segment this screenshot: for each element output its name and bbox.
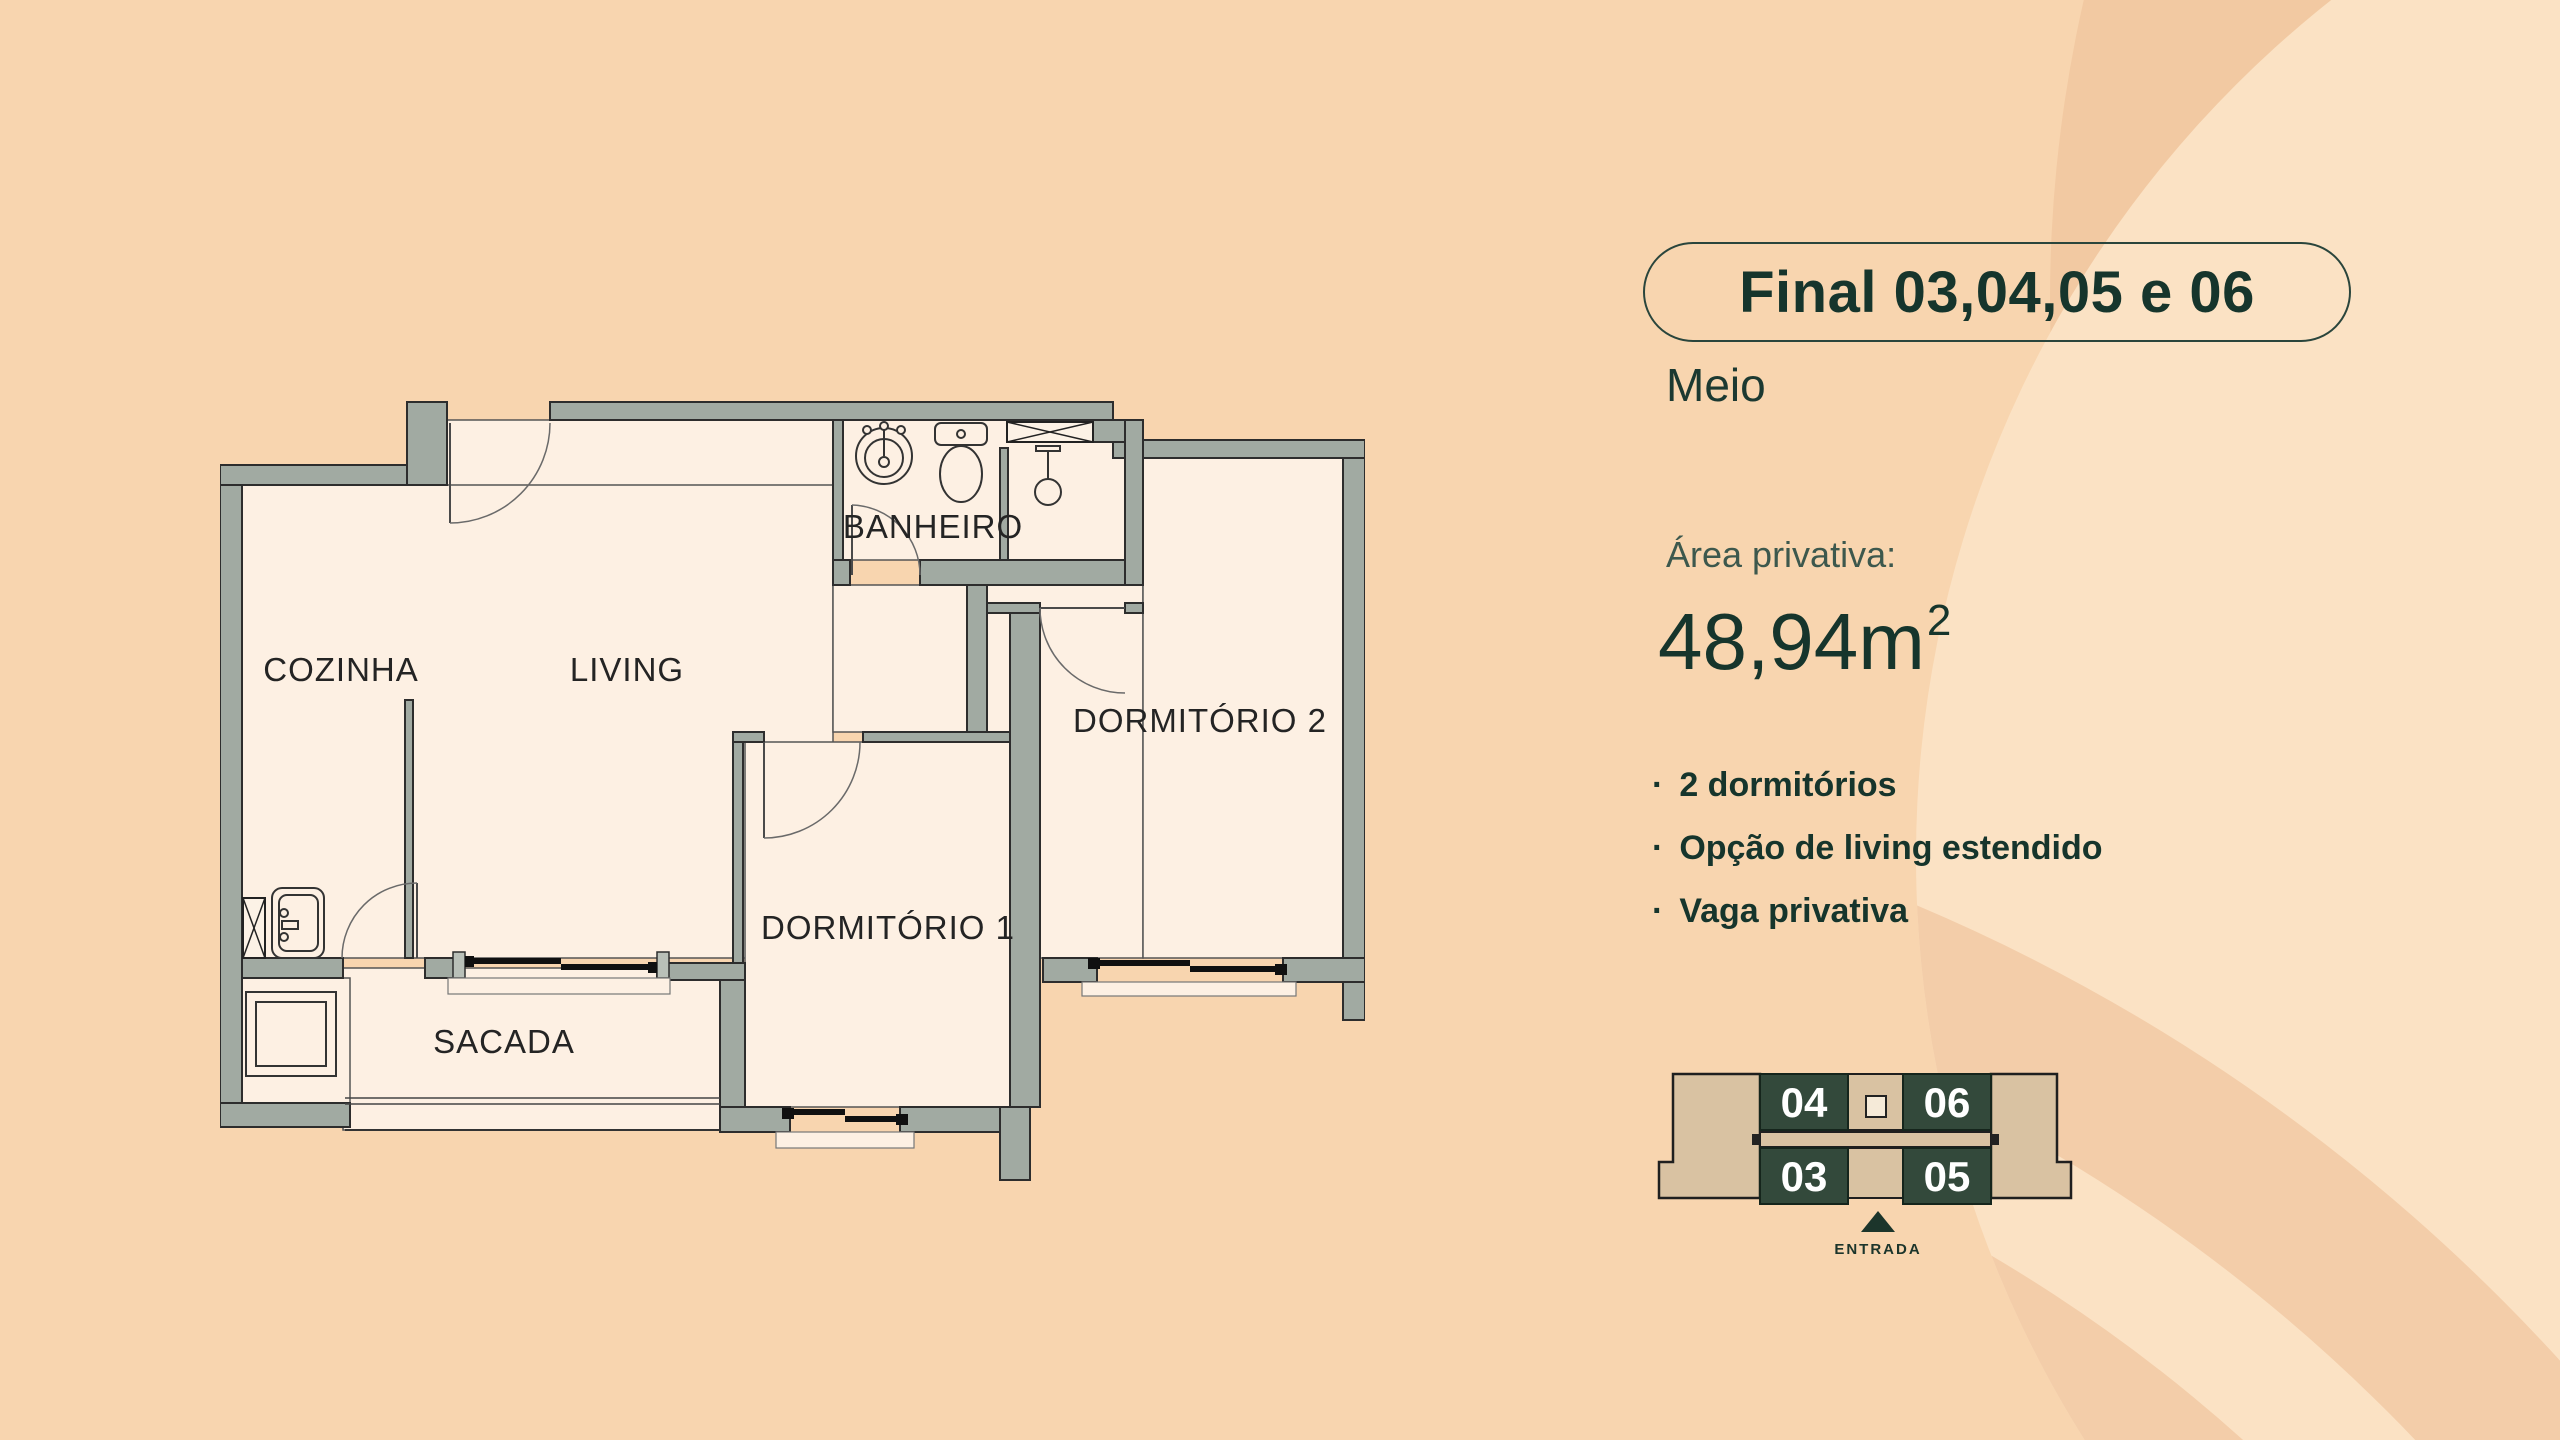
feature-item: · 2 dormitórios <box>1652 766 2103 805</box>
feature-item: · Opção de living estendido <box>1652 829 2103 868</box>
building-core-bottom <box>1848 1148 1903 1198</box>
feature-text: 2 dormitórios <box>1679 766 1896 805</box>
room-label-balcony: SACADA <box>433 1023 575 1060</box>
bullet-icon: · <box>1652 766 1663 805</box>
area-superscript: 2 <box>1927 596 1951 645</box>
unit-06-label: 06 <box>1924 1079 1971 1126</box>
floor-plan: COZINHA LIVING BANHEIRO DORMITÓRIO 2 DOR… <box>220 392 1365 1182</box>
bedroom1-window <box>776 1108 914 1148</box>
living-floor-upper <box>447 420 833 486</box>
feature-item: · Vaga privativa <box>1652 892 2103 931</box>
feature-text: Opção de living estendido <box>1679 829 2102 868</box>
bedroom2-window <box>1082 958 1296 996</box>
building-right-wing <box>1991 1074 2071 1198</box>
room-label-bedroom2: DORMITÓRIO 2 <box>1073 702 1327 739</box>
unit-05-label: 05 <box>1924 1153 1971 1200</box>
unit-04-label: 04 <box>1781 1079 1828 1126</box>
room-label-bedroom1: DORMITÓRIO 1 <box>761 909 1015 946</box>
toilet-icon <box>935 423 987 502</box>
building-corridor <box>1760 1132 1991 1147</box>
building-key-plan: 04 06 03 05 ENTRADA <box>1653 1068 2077 1260</box>
corridor-end-right <box>1991 1134 1999 1145</box>
corridor-end-left <box>1752 1134 1760 1145</box>
private-area-value: 48,94m2 <box>1658 596 1949 688</box>
bathroom-shaft <box>1007 422 1093 442</box>
bathroom-sink-icon <box>856 422 912 484</box>
feature-text: Vaga privativa <box>1679 892 1908 931</box>
apartment-brochure-slide: COZINHA LIVING BANHEIRO DORMITÓRIO 2 DOR… <box>0 0 2560 1440</box>
room-label-kitchen: COZINHA <box>263 651 419 688</box>
private-area-label: Área privativa: <box>1666 534 1896 576</box>
building-left-wing <box>1659 1074 1760 1198</box>
feature-list: · 2 dormitórios · Opção de living estend… <box>1652 766 2103 955</box>
kitchen-shaft <box>243 898 265 958</box>
elevator-icon <box>1866 1096 1886 1117</box>
position-subtitle: Meio <box>1666 358 1766 412</box>
room-label-living: LIVING <box>570 651 684 688</box>
hall-floor <box>833 585 967 732</box>
room-label-bathroom: BANHEIRO <box>843 508 1023 545</box>
entrance-arrow-icon <box>1861 1211 1895 1232</box>
area-number: 48,94m <box>1658 597 1925 686</box>
bullet-icon: · <box>1652 892 1663 931</box>
unit-finals-badge: Final 03,04,05 e 06 <box>1643 242 2351 342</box>
kitchen-sink-icon <box>272 888 324 958</box>
entrance-label: ENTRADA <box>1834 1241 1921 1258</box>
bullet-icon: · <box>1652 829 1663 868</box>
laundry-tank-icon <box>246 992 336 1076</box>
unit-03-label: 03 <box>1781 1153 1828 1200</box>
